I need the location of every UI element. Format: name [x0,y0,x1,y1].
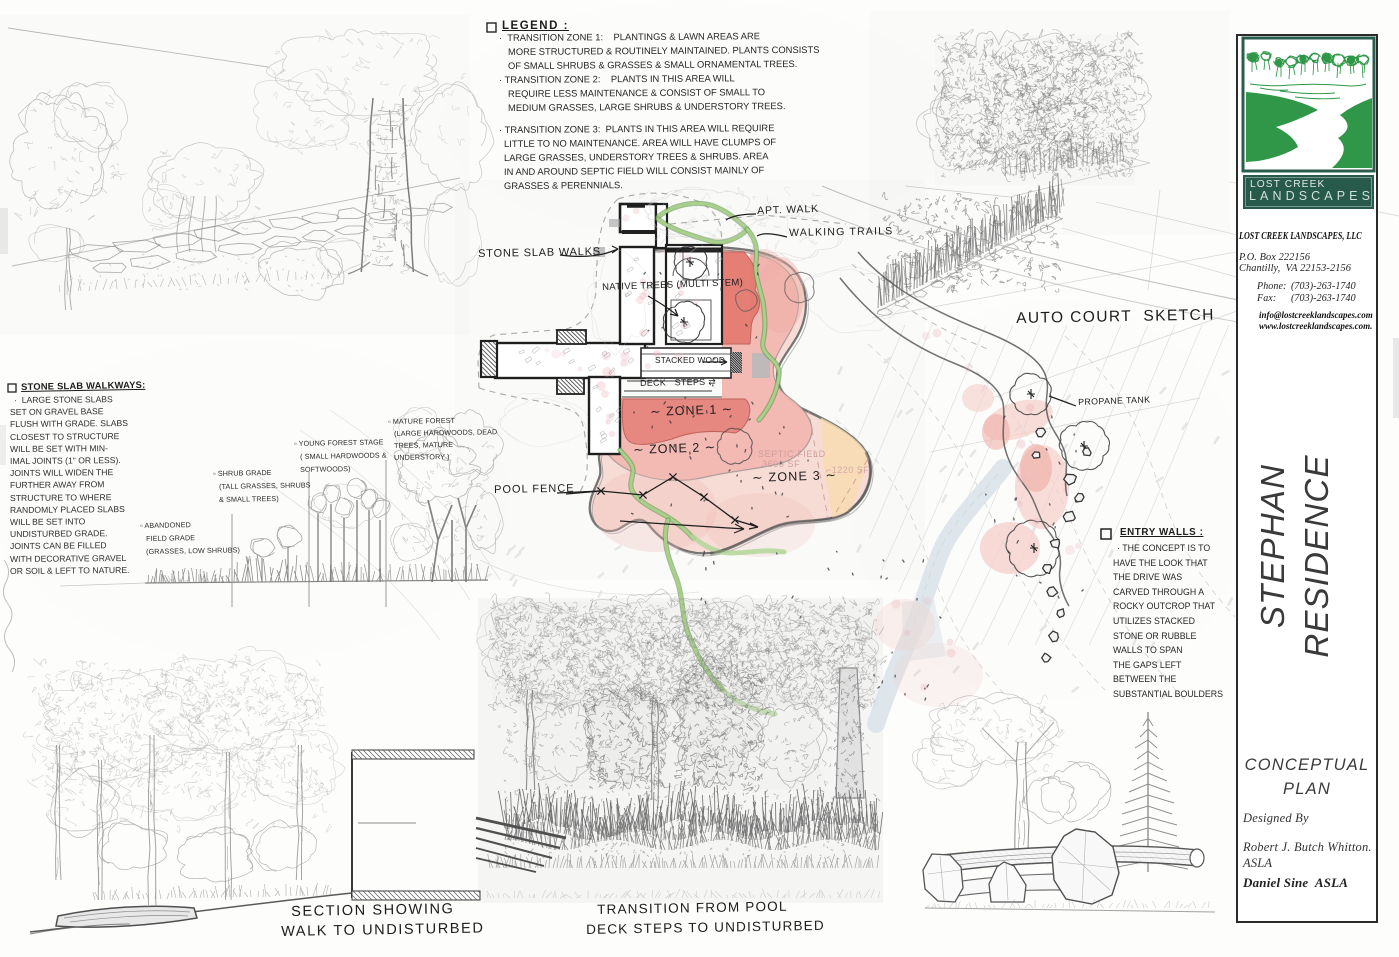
svg-text:STEPHAN: STEPHAN [1254,464,1291,628]
svg-text:RESIDENCE: RESIDENCE [1298,454,1335,657]
